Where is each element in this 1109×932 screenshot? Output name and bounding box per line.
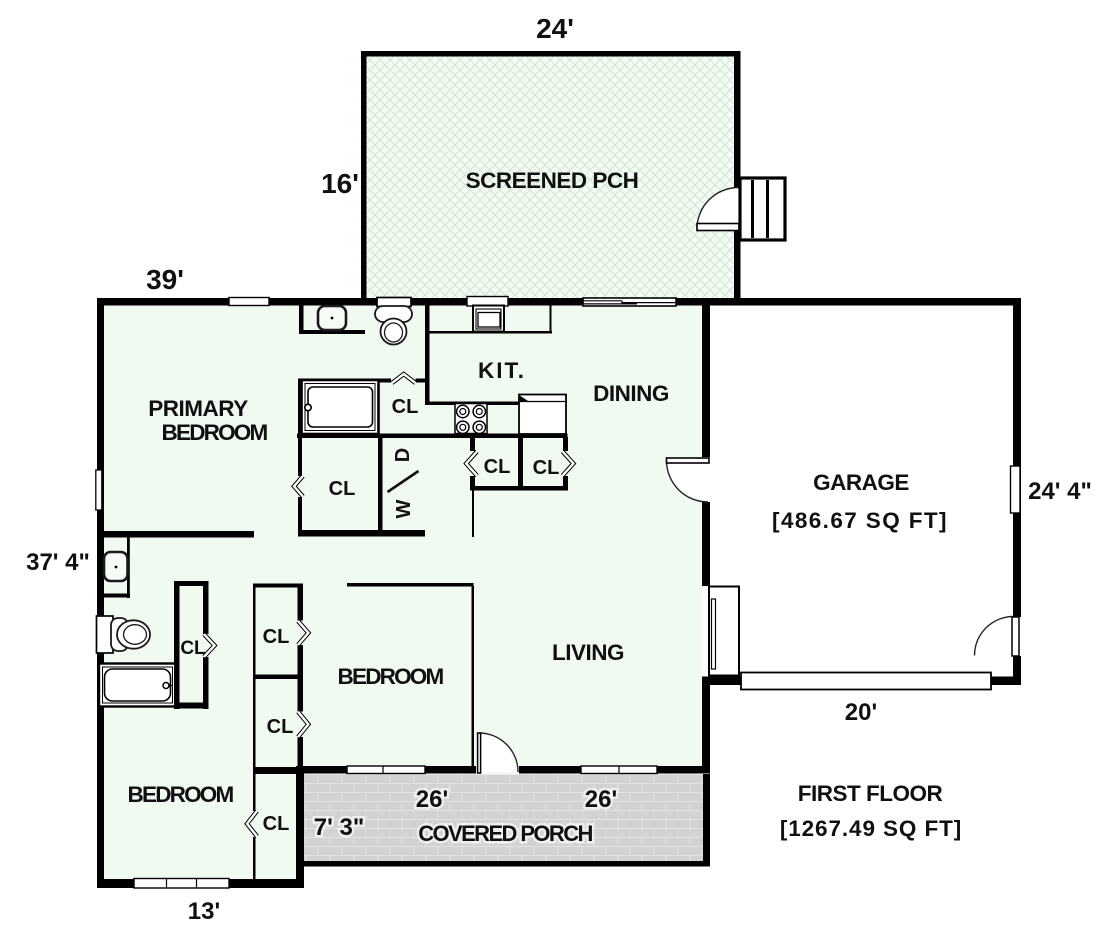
svg-text:37' 4": 37' 4"	[26, 549, 90, 576]
svg-text:CL: CL	[180, 638, 206, 659]
svg-text:24' 4": 24' 4"	[1028, 478, 1092, 505]
svg-text:[486.67 SQ FT]: [486.67 SQ FT]	[772, 508, 948, 533]
svg-text:FIRST FLOOR: FIRST FLOOR	[798, 781, 943, 806]
svg-text:D: D	[392, 448, 414, 462]
svg-text:24': 24'	[536, 13, 574, 44]
svg-text:CL: CL	[263, 626, 290, 648]
svg-text:CL: CL	[392, 396, 419, 418]
svg-text:BEDROOM: BEDROOM	[338, 664, 444, 689]
svg-text:[1267.49 SQ FT]: [1267.49 SQ FT]	[780, 816, 962, 841]
svg-text:CL: CL	[533, 457, 560, 479]
svg-text:BEDROOM: BEDROOM	[162, 420, 268, 445]
svg-text:26': 26'	[585, 786, 617, 813]
svg-text:DINING: DINING	[593, 381, 669, 406]
svg-text:CL: CL	[267, 716, 294, 738]
svg-text:13': 13'	[188, 898, 220, 925]
svg-text:LIVING: LIVING	[552, 640, 624, 665]
svg-text:16': 16'	[321, 168, 359, 199]
svg-text:SCREENED PCH: SCREENED PCH	[466, 168, 639, 193]
svg-text:7' 3": 7' 3"	[314, 814, 364, 841]
svg-text:CL: CL	[484, 456, 511, 478]
svg-text:20': 20'	[845, 699, 877, 726]
svg-text:KIT.: KIT.	[478, 358, 526, 383]
svg-text:BEDROOM: BEDROOM	[128, 782, 234, 807]
svg-text:GARAGE: GARAGE	[813, 470, 909, 495]
svg-text:CL: CL	[329, 478, 356, 500]
svg-text:CL: CL	[263, 813, 290, 835]
svg-text:W: W	[393, 499, 415, 518]
svg-text:39': 39'	[146, 264, 184, 295]
svg-text:26': 26'	[416, 786, 448, 813]
svg-text:PRIMARY: PRIMARY	[148, 396, 248, 421]
svg-text:COVERED PORCH: COVERED PORCH	[418, 821, 592, 846]
